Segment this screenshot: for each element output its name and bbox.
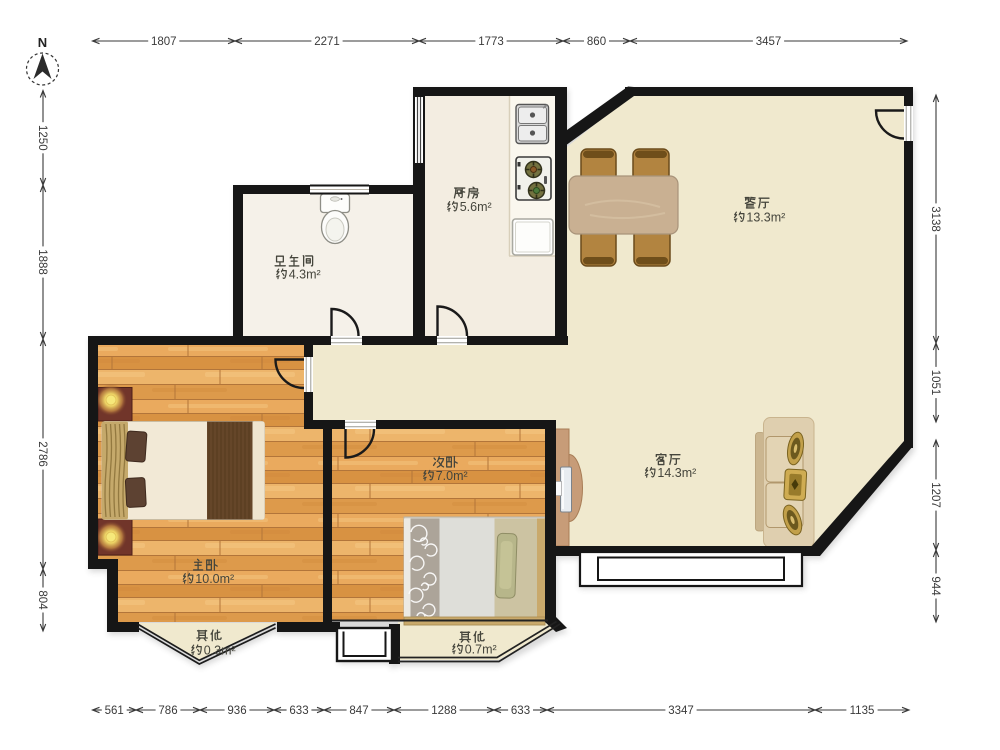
svg-text:1051: 1051 [929, 370, 941, 396]
svg-text:N: N [38, 35, 47, 50]
svg-text:3347: 3347 [668, 705, 694, 717]
svg-text:1807: 1807 [151, 36, 177, 48]
svg-text:14.3m²: 14.3m² [657, 466, 696, 480]
svg-text:2271: 2271 [314, 36, 340, 48]
svg-text:633: 633 [289, 705, 308, 717]
svg-text:5.6m²: 5.6m² [460, 200, 492, 214]
svg-text:860: 860 [587, 36, 606, 48]
svg-text:1135: 1135 [850, 705, 875, 717]
svg-text:10.0m²: 10.0m² [195, 572, 234, 586]
svg-text:786: 786 [158, 705, 177, 717]
svg-text:1250: 1250 [36, 125, 48, 151]
svg-text:3138: 3138 [929, 206, 941, 232]
svg-text:3457: 3457 [756, 36, 782, 48]
svg-text:936: 936 [227, 705, 246, 717]
svg-text:4.3m²: 4.3m² [289, 267, 321, 281]
svg-text:1207: 1207 [929, 482, 941, 508]
svg-text:804: 804 [36, 590, 48, 610]
svg-text:0.7m²: 0.7m² [465, 642, 497, 656]
svg-text:7.0m²: 7.0m² [436, 469, 468, 483]
svg-text:944: 944 [929, 576, 941, 596]
svg-text:0.3m²: 0.3m² [204, 643, 236, 657]
svg-text:13.3m²: 13.3m² [746, 210, 785, 224]
svg-text:1773: 1773 [478, 36, 504, 48]
svg-text:633: 633 [511, 705, 530, 717]
svg-text:561: 561 [105, 705, 124, 717]
svg-text:2786: 2786 [36, 441, 48, 467]
svg-text:1288: 1288 [431, 705, 457, 717]
svg-text:1888: 1888 [36, 249, 48, 275]
svg-text:847: 847 [349, 705, 368, 717]
